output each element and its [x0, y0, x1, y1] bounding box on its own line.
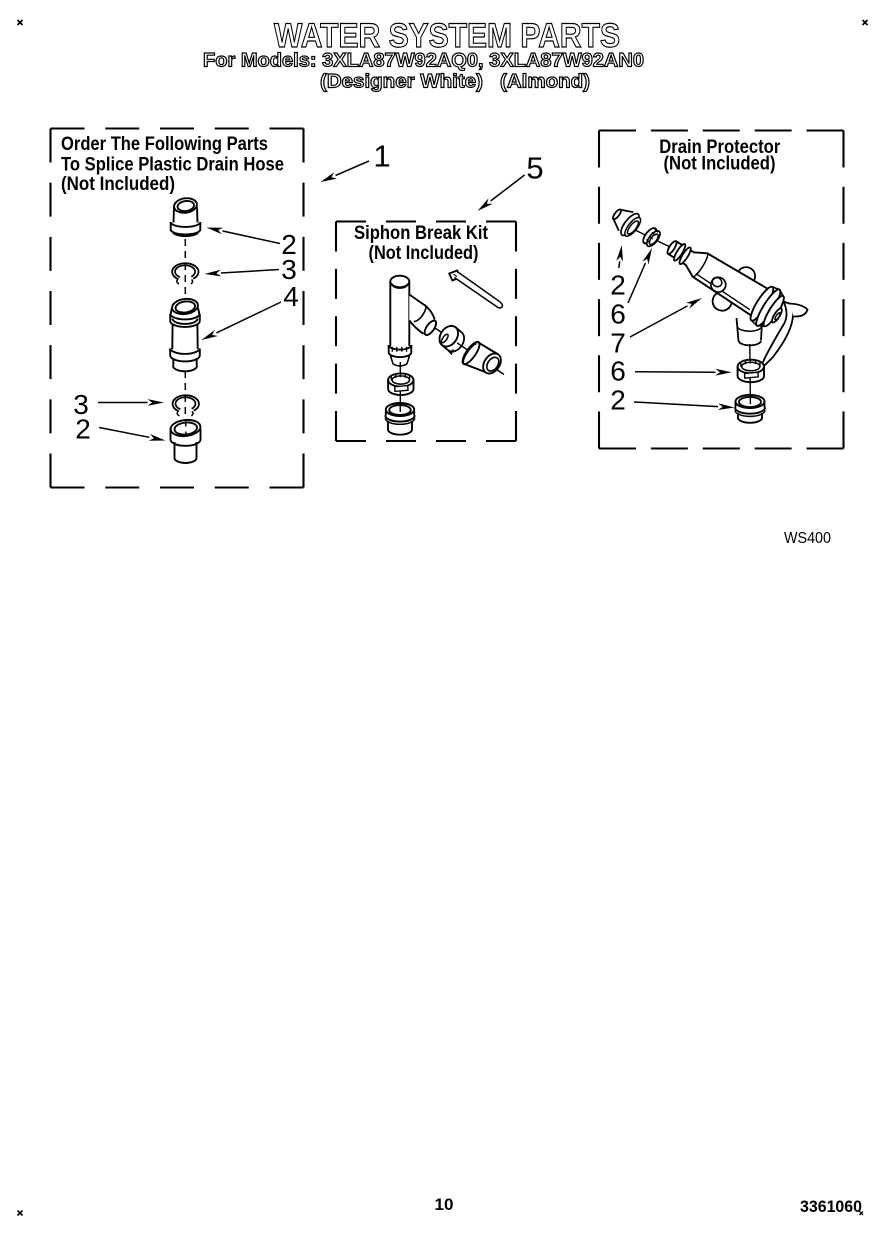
svg-text:WATER SYSTEM PARTS: WATER SYSTEM PARTS: [274, 17, 620, 55]
svg-text:(Not Included): (Not Included): [664, 153, 776, 175]
svg-text:5: 5: [526, 151, 543, 186]
svg-text:2: 2: [610, 270, 626, 301]
svg-text:10: 10: [435, 1195, 454, 1214]
svg-text:4: 4: [283, 281, 299, 312]
svg-text:3361060: 3361060: [800, 1197, 862, 1216]
svg-text:2: 2: [75, 414, 91, 445]
svg-text:For Models: 3XLA87W92AQ0, 3XLA: For Models: 3XLA87W92AQ0, 3XLA87W92AN0: [203, 51, 644, 72]
svg-text:(Designer White) (Almond): (Designer White) (Almond): [320, 72, 590, 93]
svg-text:Order The Following Parts: Order The Following Parts: [61, 133, 268, 155]
svg-text:(Not Included): (Not Included): [369, 242, 479, 264]
svg-text:2: 2: [610, 385, 626, 416]
svg-text:6: 6: [610, 356, 626, 387]
svg-text:Siphon Break Kit: Siphon Break Kit: [354, 222, 488, 244]
svg-text:1: 1: [373, 139, 390, 174]
svg-text:6: 6: [610, 299, 626, 330]
svg-text:7: 7: [610, 328, 626, 359]
svg-text:WS400: WS400: [784, 530, 831, 547]
svg-text:(Not Included): (Not Included): [61, 173, 175, 195]
